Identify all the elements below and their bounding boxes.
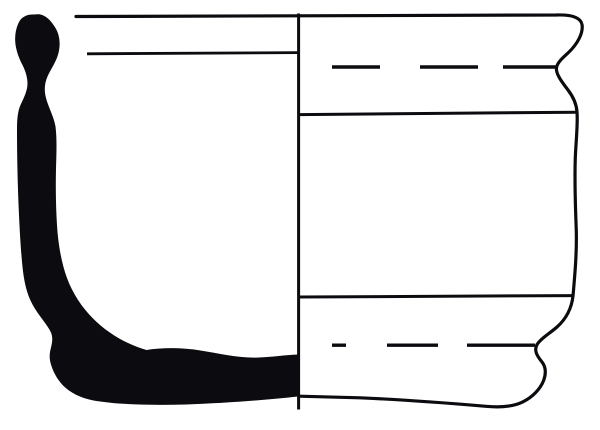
lower-body-line: [299, 296, 573, 297]
section-profile: [15, 14, 298, 405]
shoulder-line: [299, 112, 577, 114]
exterior-outline: [76, 15, 582, 407]
pottery-profile-canvas: [0, 0, 600, 430]
pottery-profile-figure: [0, 0, 600, 430]
rim-interior-line: [87, 53, 298, 54]
